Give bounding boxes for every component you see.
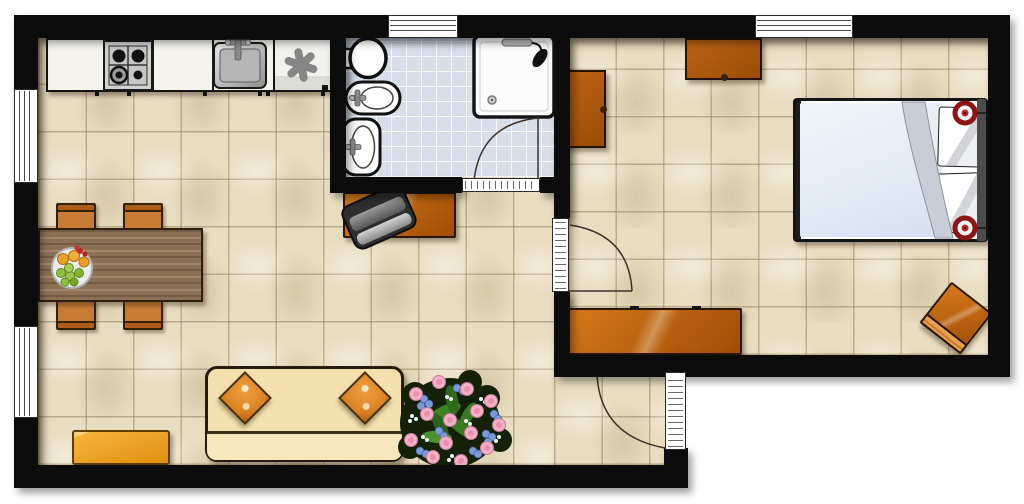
window-bathroom bbox=[388, 15, 458, 38]
entrance-door bbox=[665, 372, 686, 450]
wall-entry-side bbox=[664, 448, 688, 470]
window-bedroom bbox=[755, 15, 853, 38]
wall-right bbox=[988, 15, 1010, 377]
wall-bathroom-bottom-b bbox=[540, 177, 570, 193]
bathroom-door bbox=[462, 178, 540, 192]
bedroom-door bbox=[552, 218, 569, 292]
wall-bedroom-bottom bbox=[554, 355, 1010, 377]
wall-bathroom-bottom-a bbox=[330, 177, 462, 193]
window-left-lower bbox=[14, 326, 38, 418]
floor-plan-canvas bbox=[0, 0, 1024, 504]
wall-bottom bbox=[14, 465, 688, 488]
wall-divider-lower bbox=[554, 292, 570, 377]
wall-bathroom-left bbox=[330, 15, 346, 193]
wall-top bbox=[14, 15, 1010, 38]
walls-layer bbox=[0, 0, 1024, 504]
window-left-upper bbox=[14, 89, 38, 183]
